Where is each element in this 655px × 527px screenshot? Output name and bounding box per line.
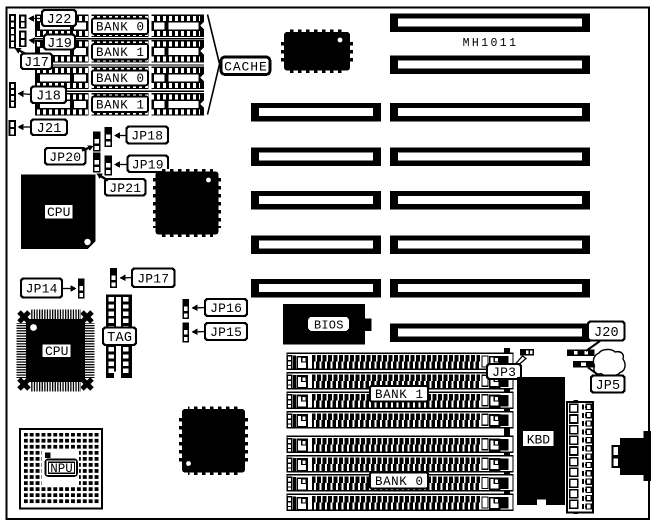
svg-text:BANK 1: BANK 1 [96,46,145,60]
svg-text:J22: J22 [47,13,72,28]
svg-text:JP3: JP3 [492,365,516,380]
svg-text:CACHE: CACHE [224,59,268,74]
svg-text:TAG: TAG [107,331,132,346]
svg-text:J20: J20 [594,326,619,341]
svg-text:J17: J17 [24,56,49,71]
svg-text:BANK 0: BANK 0 [96,21,145,35]
svg-text:J21: J21 [37,122,62,137]
svg-text:NPU: NPU [50,462,73,476]
svg-text:JP5: JP5 [595,379,620,394]
svg-text:BANK 1: BANK 1 [96,99,145,113]
svg-text:JP14: JP14 [26,282,58,297]
svg-text:BANK 0: BANK 0 [375,475,424,489]
svg-text:CPU: CPU [47,205,70,220]
svg-text:JP18: JP18 [131,129,163,144]
svg-text:JP15: JP15 [210,325,242,340]
svg-text:J19: J19 [47,37,72,52]
svg-text:KBD: KBD [527,433,551,448]
svg-text:JP17: JP17 [137,271,169,286]
svg-text:BANK 0: BANK 0 [96,72,145,86]
svg-text:JP16: JP16 [210,301,242,316]
svg-text:CPU: CPU [45,344,68,359]
svg-text:JP19: JP19 [132,157,164,172]
svg-text:J18: J18 [36,90,61,105]
svg-text:BIOS: BIOS [314,318,344,332]
svg-text:JP21: JP21 [109,181,141,196]
svg-text:BANK 1: BANK 1 [375,388,424,402]
svg-text:JP20: JP20 [49,150,81,165]
svg-text:MH1011: MH1011 [463,37,519,50]
